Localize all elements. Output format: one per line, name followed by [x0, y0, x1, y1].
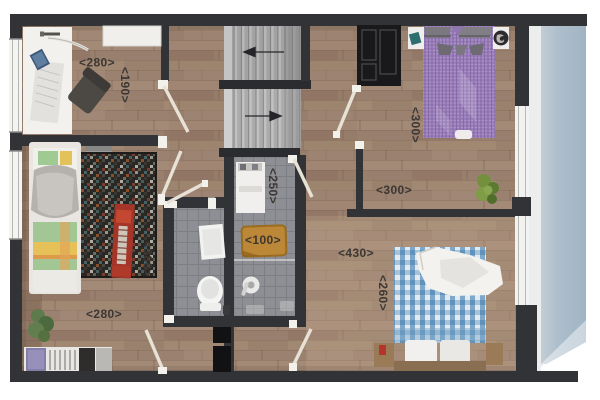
svg-text:<250>: <250> — [266, 168, 280, 204]
svg-text:<300>: <300> — [409, 107, 423, 143]
svg-text:<280>: <280> — [86, 307, 122, 321]
svg-text:<280>: <280> — [79, 56, 115, 70]
svg-text:<300>: <300> — [376, 183, 412, 197]
svg-text:<380>: <380> — [141, 241, 155, 277]
svg-text:<430>: <430> — [338, 246, 374, 260]
svg-text:<190>: <190> — [118, 67, 132, 103]
svg-text:<260>: <260> — [376, 275, 390, 311]
svg-text:<100>: <100> — [245, 233, 281, 247]
